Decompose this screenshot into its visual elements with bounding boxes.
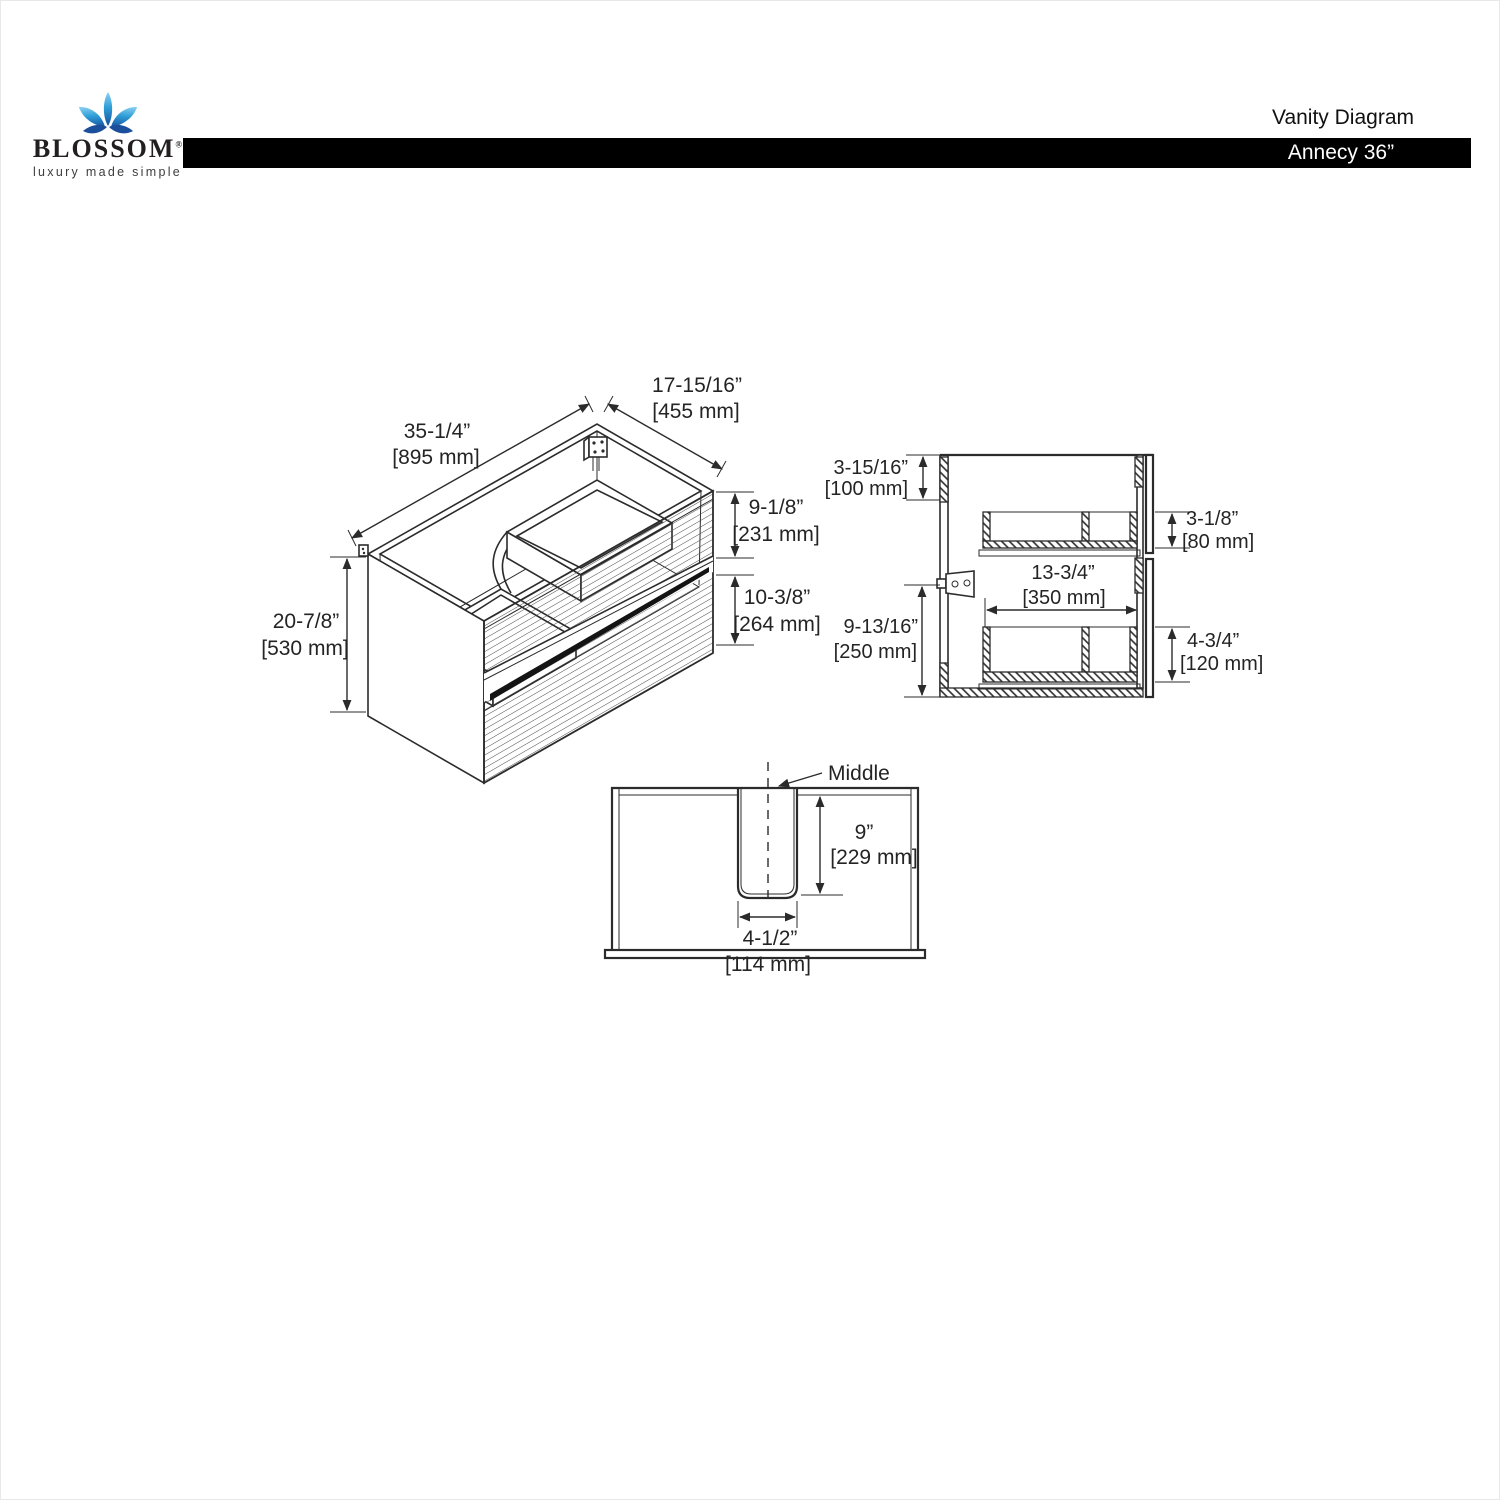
section-top-drawer-in: 3-1/8” bbox=[1186, 508, 1238, 530]
back-middle-label: Middle bbox=[828, 762, 890, 785]
section-bottom-drawer bbox=[979, 627, 1140, 689]
back-dim-slot-depth: 9” [229 mm] bbox=[797, 795, 918, 895]
iso-top-drawer-in: 9-1/8” bbox=[749, 496, 804, 519]
section-back-rail bbox=[940, 457, 948, 502]
section-back-rail-in: 3-15/16” bbox=[834, 457, 909, 479]
section-view: 3-15/16” [100 mm] 9-13/16” [250 mm] 13-3… bbox=[825, 455, 1264, 697]
section-left-height-mm: [250 mm] bbox=[834, 641, 917, 663]
iso-dim-top-drawer: 9-1/8” [231 mm] bbox=[716, 492, 820, 558]
section-dim-back-rail: 3-15/16” [100 mm] bbox=[825, 455, 940, 500]
section-dim-top-drawer: 3-1/8” [80 mm] bbox=[1155, 508, 1254, 553]
iso-depth-in: 17-15/16” bbox=[652, 374, 742, 397]
spec-sheet-page: BLOSSOM® luxury made simple Vanity Diagr… bbox=[0, 0, 1500, 1500]
iso-height-in: 20-7/8” bbox=[273, 610, 340, 633]
iso-mount-bracket-left bbox=[359, 545, 368, 556]
section-dim-inner-width: 13-3/4” [350 mm] bbox=[985, 562, 1136, 627]
back-middle-callout: Middle bbox=[779, 762, 890, 786]
iso-top-drawer-mm: [231 mm] bbox=[732, 523, 820, 546]
section-dim-bottom-drawer: 4-3/4” [120 mm] bbox=[1155, 627, 1263, 682]
iso-width-mm: [895 mm] bbox=[392, 446, 480, 469]
back-slot-depth-in: 9” bbox=[855, 821, 874, 844]
section-bottom-drawer-front bbox=[1146, 559, 1153, 697]
iso-dim-height: 20-7/8” [530 mm] bbox=[261, 557, 366, 712]
vanity-technical-drawing: 35-1/4” [895 mm] 17-15/16” [455 mm] 9-1/… bbox=[0, 0, 1500, 1500]
iso-bottom-drawer-in: 10-3/8” bbox=[744, 586, 811, 609]
section-top-drawer bbox=[979, 512, 1140, 556]
section-top-drawer-mm: [80 mm] bbox=[1182, 531, 1254, 553]
back-slot-depth-mm: [229 mm] bbox=[830, 846, 918, 869]
section-back-rail-mm: [100 mm] bbox=[825, 478, 908, 500]
section-bottom-drawer-in: 4-3/4” bbox=[1187, 630, 1239, 652]
iso-bottom-drawer-mm: [264 mm] bbox=[733, 613, 821, 636]
iso-view: 35-1/4” [895 mm] 17-15/16” [455 mm] 9-1/… bbox=[261, 374, 821, 783]
iso-height-mm: [530 mm] bbox=[261, 637, 349, 660]
section-inner-width-mm: [350 mm] bbox=[1022, 587, 1105, 609]
section-wall-bracket bbox=[937, 571, 974, 597]
back-slot-width-mm: [114 mm] bbox=[725, 953, 811, 976]
section-bottom-drawer-mm: [120 mm] bbox=[1180, 653, 1263, 675]
back-dim-slot-width: 4-1/2” [114 mm] bbox=[725, 901, 811, 976]
section-left-height-in: 9-13/16” bbox=[844, 616, 919, 638]
iso-dim-bottom-drawer: 10-3/8” [264 mm] bbox=[716, 575, 821, 645]
section-dim-left-height: 9-13/16” [250 mm] bbox=[834, 585, 940, 697]
back-view: Middle 9” [229 mm] 4-1/2” [114 mm] bbox=[605, 762, 925, 976]
back-slot-width-in: 4-1/2” bbox=[743, 927, 798, 950]
section-top-drawer-front bbox=[1146, 455, 1153, 553]
iso-depth-mm: [455 mm] bbox=[652, 400, 740, 423]
iso-width-in: 35-1/4” bbox=[404, 420, 471, 443]
section-inner-width-in: 13-3/4” bbox=[1031, 562, 1094, 584]
